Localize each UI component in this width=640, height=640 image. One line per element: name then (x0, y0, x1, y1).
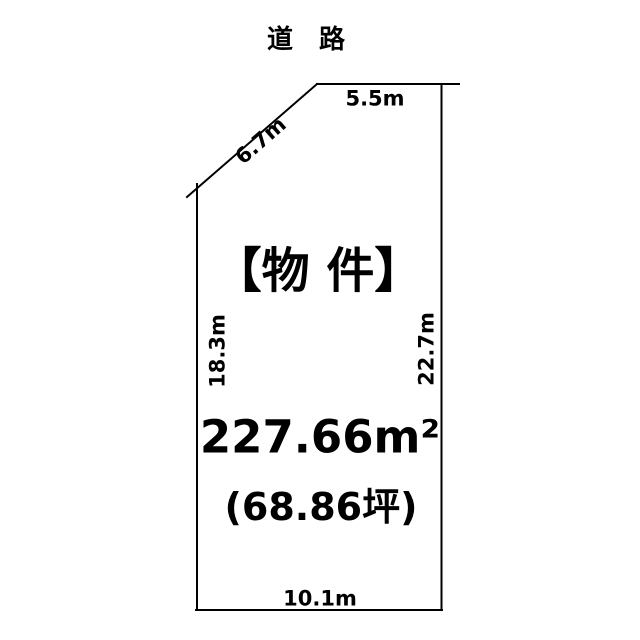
area-tsubo: (68.86坪) (225, 488, 418, 526)
area-square-meters: 227.66m² (200, 415, 440, 460)
dimension-left: 18.3m (208, 314, 229, 388)
dimension-right: 22.7m (417, 312, 438, 386)
dimension-bottom: 10.1m (283, 589, 357, 610)
property-title: 【物 件】 (214, 247, 423, 295)
dimension-top: 5.5m (345, 89, 404, 110)
lot-outline (0, 0, 640, 640)
lot-diagram: 道 路 5.5m 6.7m 18.3m 22.7m 10.1m 【物 件】 22… (0, 0, 640, 640)
